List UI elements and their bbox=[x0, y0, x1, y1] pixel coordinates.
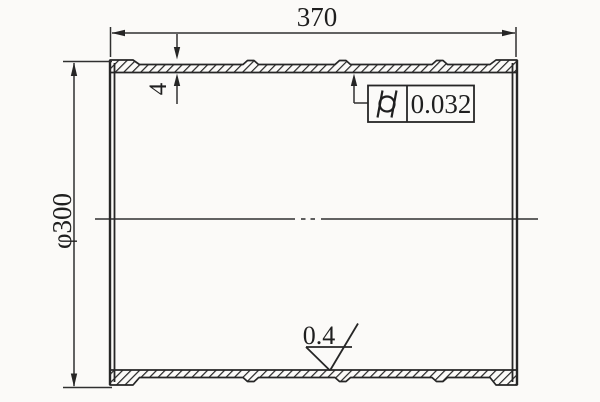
surface-roughness-value: 0.4 bbox=[303, 321, 336, 350]
engineering-drawing: 370 φ300 4 0.032 0. bbox=[0, 0, 600, 402]
dim-length-value: 370 bbox=[297, 2, 338, 32]
dim-wall-thickness-value: 4 bbox=[145, 82, 172, 95]
dim-diameter-value: φ300 bbox=[47, 193, 77, 249]
drawing-canvas: 370 φ300 4 0.032 0. bbox=[0, 0, 600, 402]
tolerance-value: 0.032 bbox=[411, 89, 472, 119]
